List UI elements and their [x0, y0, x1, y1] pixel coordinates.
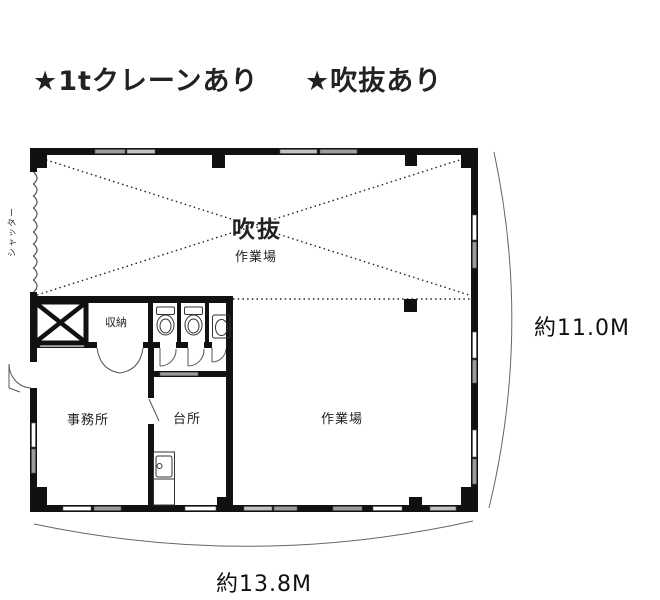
room-label-office: 事務所 [67, 413, 109, 428]
shutter-label: シャッター [7, 207, 18, 257]
toilet-2 [185, 307, 203, 335]
room-label-workshop: 作業場 [321, 411, 363, 427]
dimension-lines [34, 152, 512, 546]
dimension-width: 約13.8M [216, 572, 312, 597]
toilet-1 [157, 307, 175, 335]
doors [9, 348, 226, 421]
room-label-kitchen: 台所 [173, 412, 201, 427]
shaft-x-box [35, 302, 86, 343]
posts [212, 148, 422, 506]
shutter-line [34, 172, 38, 292]
outer-walls [30, 148, 478, 512]
kitchen-sink [154, 452, 175, 505]
dimension-height: 約11.0M [534, 316, 630, 341]
crane-note: ★1tクレーンあり [33, 66, 259, 97]
floorplan-page: ★1tクレーンあり ★吹抜あり [0, 0, 660, 600]
floor-plan: ★1tクレーンあり ★吹抜あり [0, 0, 660, 600]
room-label-void-area: 作業場 [235, 249, 277, 265]
room-label-storage: 収納 [105, 316, 127, 329]
void-note: ★吹抜あり [305, 66, 442, 97]
room-label-void: 吹抜 [232, 216, 282, 243]
wall-windows [32, 150, 477, 511]
